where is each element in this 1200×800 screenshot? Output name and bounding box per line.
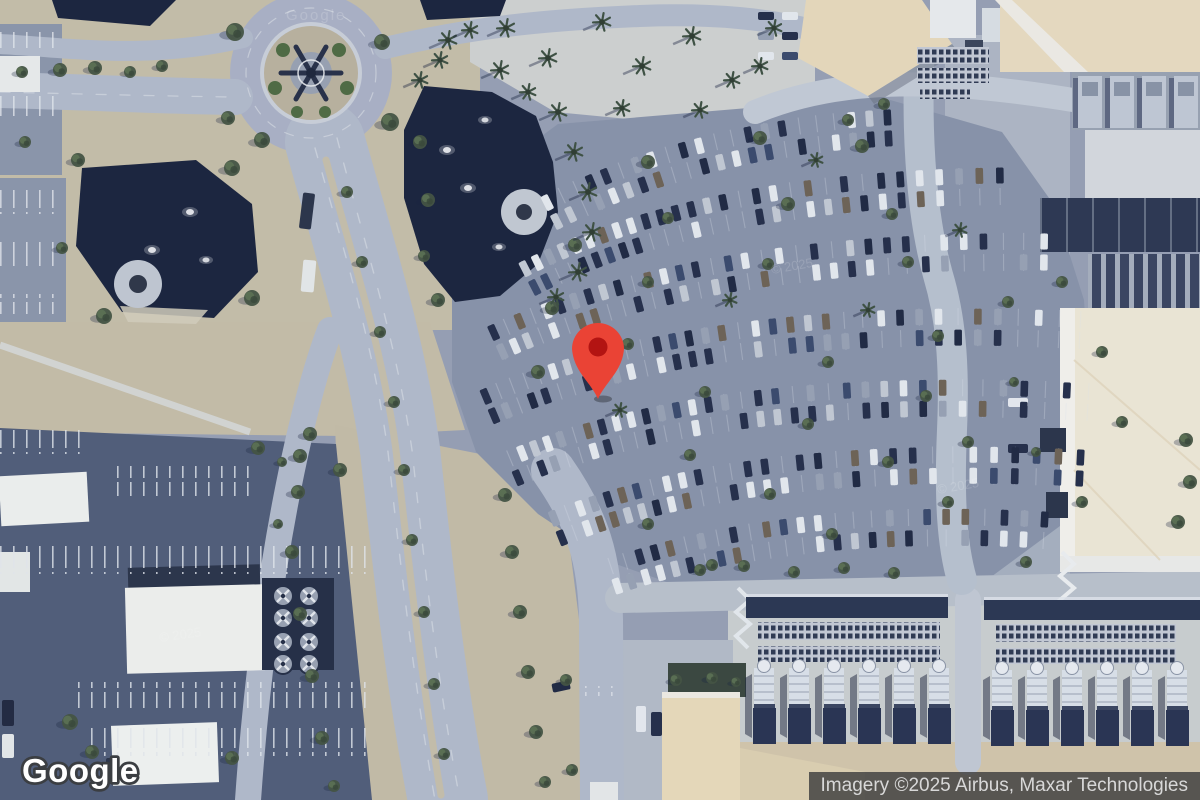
satellite-imagery[interactable]: Google © 2025 © 2025 © 2025 (0, 0, 1200, 800)
map-viewport[interactable]: Google © 2025 © 2025 © 2025 Google Image… (0, 0, 1200, 800)
marker-shadow (594, 396, 612, 403)
google-logo-text[interactable]: Google (22, 752, 139, 789)
google-logo[interactable]: Google (14, 748, 184, 794)
watermark-google: Google (286, 7, 346, 24)
attribution-bar: Imagery ©2025 Airbus, Maxar Technologies (809, 772, 1200, 800)
attribution-text: Imagery ©2025 Airbus, Maxar Technologies (821, 772, 1188, 799)
marker-pin-dot (589, 338, 608, 357)
